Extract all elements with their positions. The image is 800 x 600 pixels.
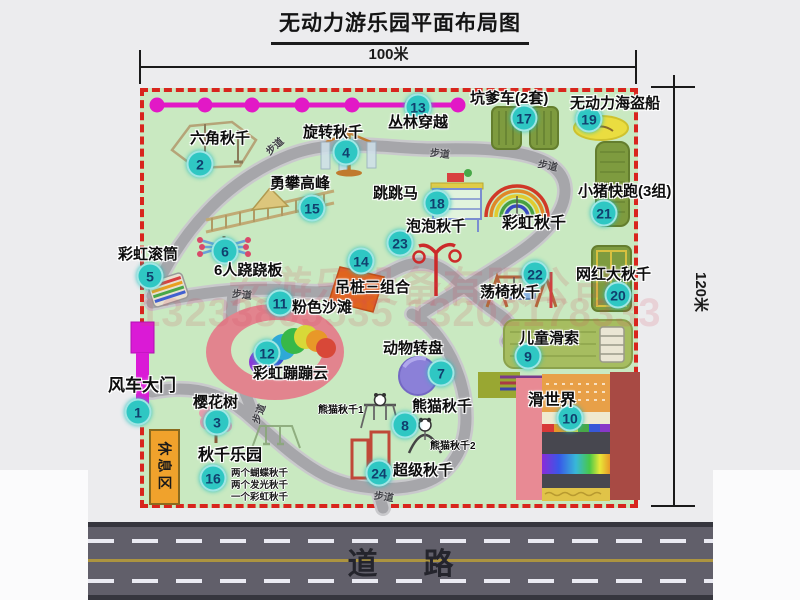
road-label: 道路 [88, 527, 713, 595]
dimension-width-tick-left [139, 50, 141, 84]
page-title-text: 无动力游乐园平面布局图 [271, 7, 529, 45]
swing-park-note-line: 两个发光秋千 [231, 480, 288, 492]
page-title: 无动力游乐园平面布局图 [0, 7, 800, 45]
swing-park-notes: 两个蝴蝶秋千两个发光秋千一个彩虹秋千 [231, 468, 288, 504]
dimension-height-label: 120米 [691, 272, 712, 312]
watermark-phone: 13233805535 13202178333 [138, 291, 662, 336]
dimension-width-label: 100米 [140, 43, 637, 64]
left-margin [0, 470, 88, 600]
swing-park-note-line: 一个彩虹秋千 [231, 492, 288, 504]
dimension-height-tick-bottom [651, 505, 695, 507]
right-margin [713, 470, 800, 600]
dimension-width-line [140, 66, 637, 68]
dimension-height-line [673, 75, 675, 507]
dimension-width-tick-right [635, 50, 637, 84]
rest-area-label: 休息区 [155, 442, 175, 493]
page-background: 无动力游乐园平面布局图 100米 120米 [0, 0, 800, 600]
road: 道路 [88, 522, 713, 600]
dimension-height-tick-top [651, 86, 695, 88]
swing-park-note-line: 两个蝴蝶秋千 [231, 468, 288, 480]
rest-area-box: 休息区 [149, 429, 180, 505]
